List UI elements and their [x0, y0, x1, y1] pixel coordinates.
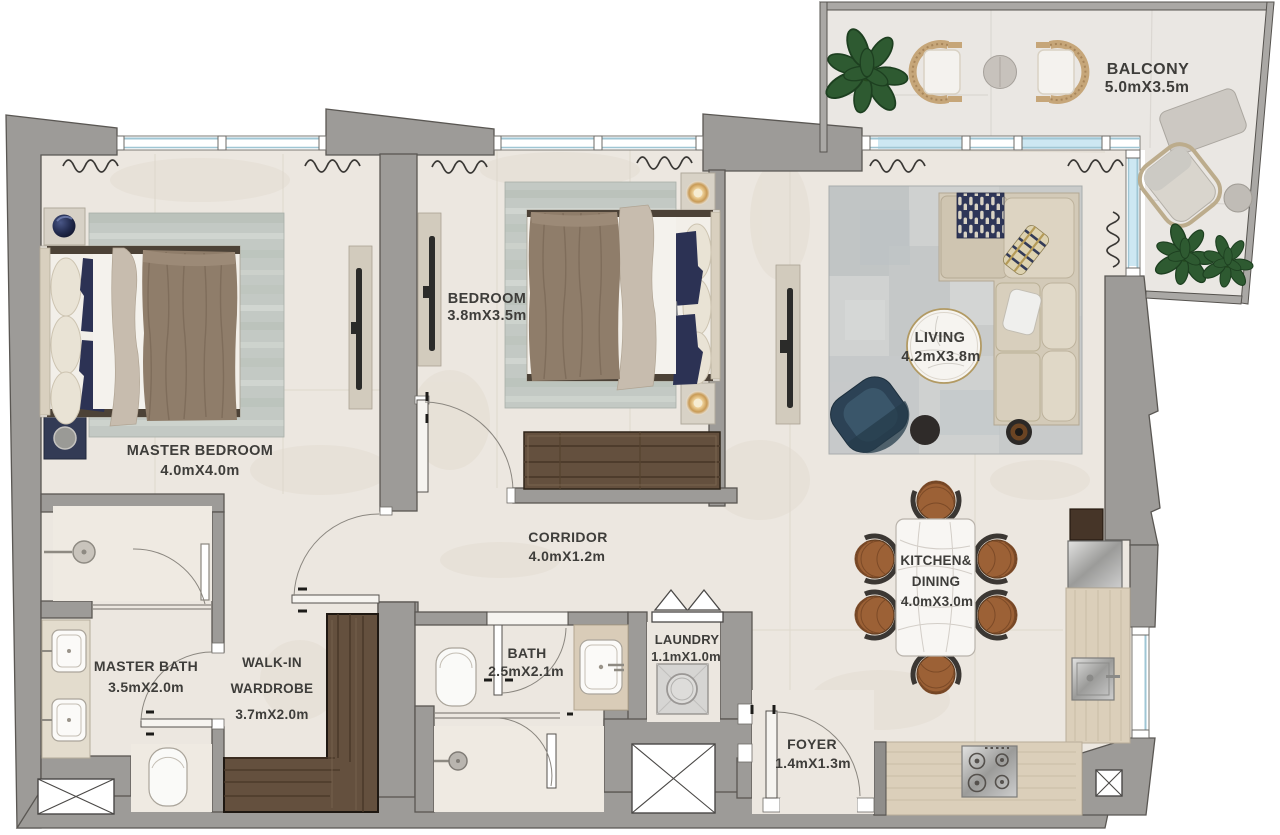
svg-text:WALK-IN: WALK-IN — [242, 655, 302, 670]
svg-text:LAUNDRY: LAUNDRY — [655, 632, 720, 647]
svg-text:KITCHEN&: KITCHEN& — [900, 553, 971, 568]
svg-text:2.5mX2.1m: 2.5mX2.1m — [488, 663, 564, 679]
svg-text:LIVING: LIVING — [915, 330, 966, 346]
svg-text:4.0mX3.0m: 4.0mX3.0m — [901, 594, 973, 609]
svg-text:4.0mX4.0m: 4.0mX4.0m — [160, 463, 239, 479]
svg-text:4.2mX3.8m: 4.2mX3.8m — [901, 349, 980, 365]
svg-text:BEDROOM: BEDROOM — [448, 291, 527, 307]
svg-text:5.0mX3.5m: 5.0mX3.5m — [1105, 79, 1190, 96]
svg-text:4.0mX1.2m: 4.0mX1.2m — [529, 548, 606, 564]
svg-text:FOYER: FOYER — [787, 736, 837, 752]
svg-text:WARDROBE: WARDROBE — [231, 681, 314, 696]
svg-text:3.8mX3.5m: 3.8mX3.5m — [447, 308, 526, 324]
svg-text:MASTER BATH: MASTER BATH — [94, 658, 198, 674]
svg-text:3.5mX2.0m: 3.5mX2.0m — [108, 679, 184, 695]
svg-text:3.7mX2.0m: 3.7mX2.0m — [235, 707, 308, 722]
svg-text:1.1mX1.0m: 1.1mX1.0m — [651, 649, 721, 664]
svg-text:1.4mX1.3m: 1.4mX1.3m — [775, 755, 851, 771]
svg-text:DINING: DINING — [912, 574, 960, 589]
svg-text:MASTER BEDROOM: MASTER BEDROOM — [127, 443, 274, 459]
svg-text:CORRIDOR: CORRIDOR — [528, 529, 607, 545]
svg-text:BATH: BATH — [507, 645, 546, 661]
svg-text:BALCONY: BALCONY — [1107, 61, 1190, 78]
